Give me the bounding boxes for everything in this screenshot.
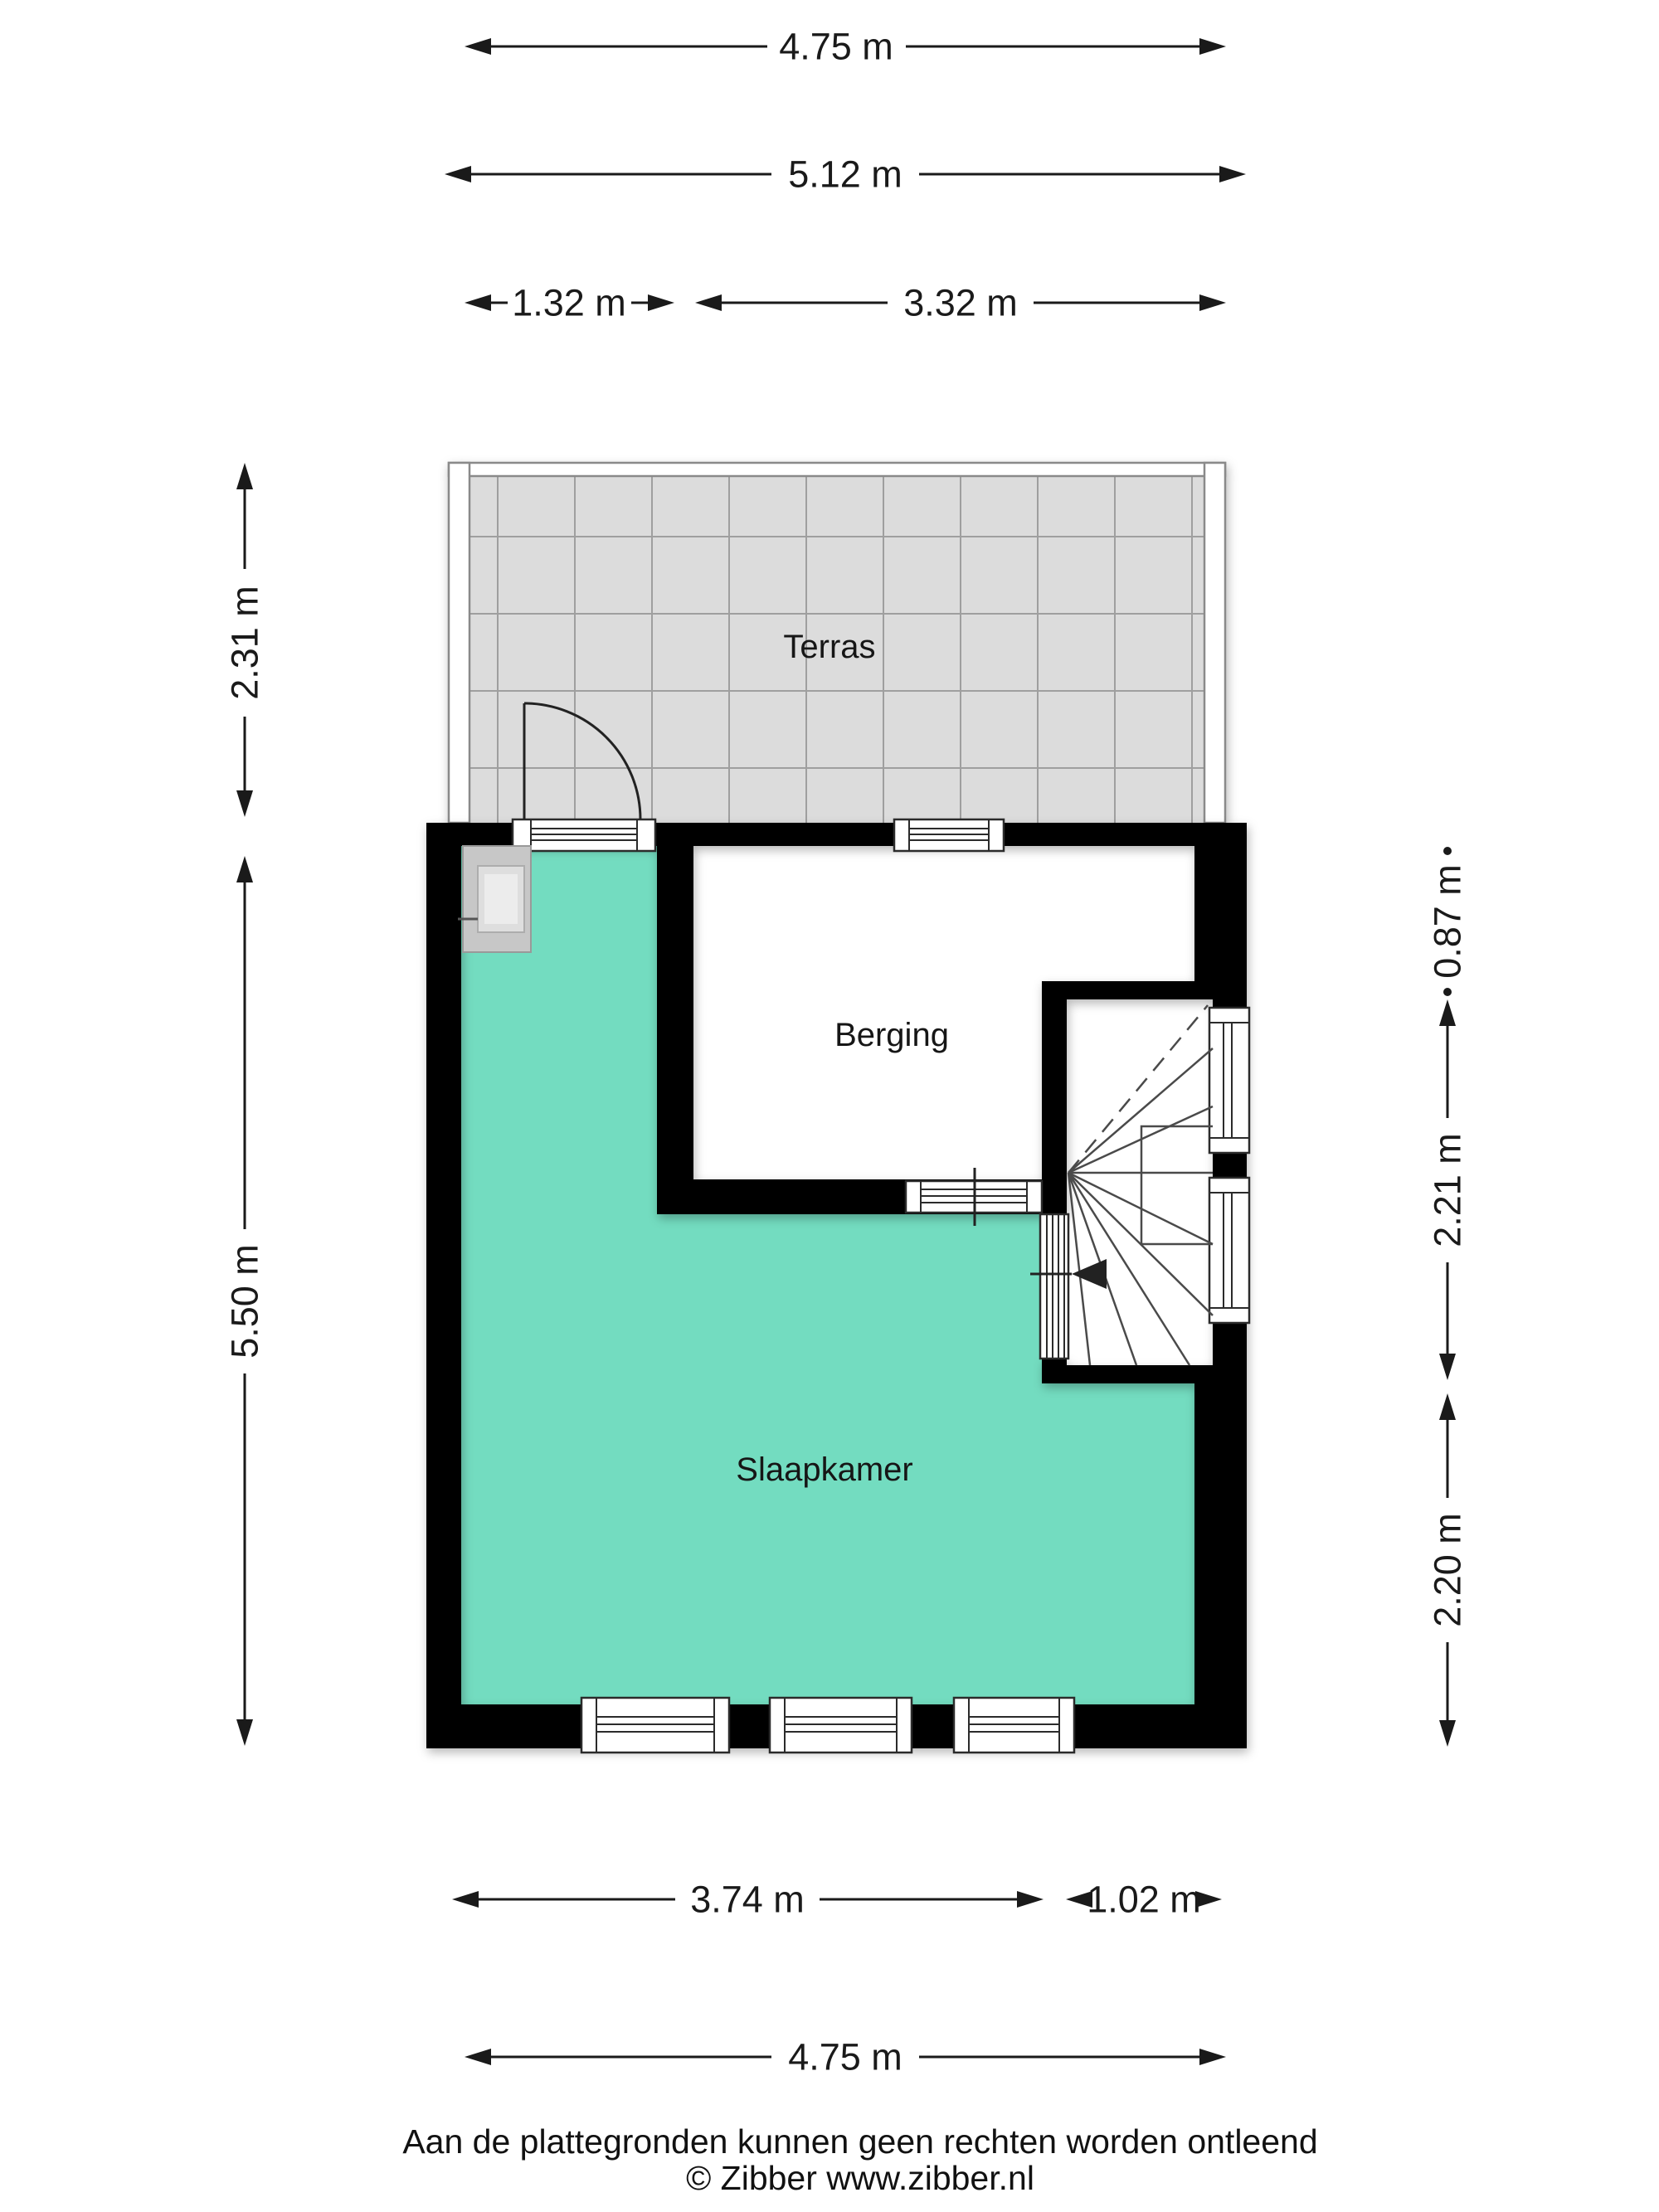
dim-label: 5.12 m bbox=[788, 153, 902, 196]
terrace-label: Terras bbox=[783, 629, 875, 665]
dim-label: 0.87 m bbox=[1427, 864, 1469, 979]
dim-right-middle: 2.21 m bbox=[1427, 999, 1469, 1380]
bottom-window-3 bbox=[954, 1698, 1074, 1753]
storage-label: Berging bbox=[834, 1017, 949, 1053]
stair-side-window bbox=[1040, 1214, 1068, 1359]
wall-stair-top bbox=[1042, 981, 1213, 999]
dim-bottom-right-segment: 1.02 m bbox=[1066, 1879, 1222, 1921]
footer-copyright: © Zibber www.zibber.nl bbox=[686, 2159, 1034, 2197]
dim-label: 1.32 m bbox=[512, 282, 626, 324]
dim-bottom-left-segment: 3.74 m bbox=[452, 1879, 1044, 1921]
dim-label: 2.20 m bbox=[1427, 1513, 1469, 1627]
dim-left-terrace-depth: 2.31 m bbox=[224, 463, 266, 817]
footer-disclaimer: Aan de plattegronden kunnen geen rechten… bbox=[402, 2122, 1317, 2161]
dim-top-left-segment: 1.32 m bbox=[465, 282, 674, 324]
right-window-lower bbox=[1209, 1178, 1249, 1323]
wall-left bbox=[426, 823, 461, 1748]
dim-label: 2.31 m bbox=[224, 586, 266, 700]
storage-window bbox=[894, 819, 1004, 851]
bedroom-label: Slaapkamer bbox=[736, 1451, 912, 1488]
dim-right-upper: 0.87 m bbox=[1427, 847, 1469, 996]
footer: Aan de plattegronden kunnen geen rechten… bbox=[402, 2122, 1317, 2197]
terrace-railing-right bbox=[1204, 463, 1225, 823]
wall-stair-bottom bbox=[1042, 1365, 1213, 1383]
dim-label: 3.74 m bbox=[690, 1879, 805, 1921]
bottom-window-1 bbox=[581, 1698, 729, 1753]
dim-top-width-inner: 4.75 m bbox=[465, 26, 1226, 68]
dim-top-right-segment: 3.32 m bbox=[695, 282, 1226, 324]
dim-top-width-outer: 5.12 m bbox=[445, 153, 1246, 196]
bedroom-fixture bbox=[458, 846, 531, 952]
dim-label: 4.75 m bbox=[779, 26, 893, 68]
dim-label: 5.50 m bbox=[224, 1244, 266, 1359]
dim-label: 4.75 m bbox=[788, 2036, 902, 2078]
dim-left-building-depth: 5.50 m bbox=[224, 856, 266, 1746]
terrace-railing-left bbox=[449, 463, 469, 823]
wall-right-upper bbox=[1194, 823, 1247, 999]
wall-right-lower bbox=[1194, 1383, 1247, 1748]
bottom-window-2 bbox=[770, 1698, 912, 1753]
dim-label: 2.21 m bbox=[1427, 1133, 1469, 1247]
dim-right-lower: 2.20 m bbox=[1427, 1393, 1469, 1747]
wall-bedroom-storage bbox=[657, 823, 693, 1214]
dim-label: 1.02 m bbox=[1087, 1879, 1201, 1921]
terrace-railing-top bbox=[449, 463, 1225, 476]
floor-plan: Terras Berging Slaapkamer 4.75 m 5.12 m … bbox=[0, 0, 1659, 2212]
dim-bottom-width: 4.75 m bbox=[465, 2036, 1226, 2078]
right-window-upper bbox=[1209, 1008, 1249, 1153]
wall-stair-left bbox=[1042, 981, 1067, 1214]
dim-label: 3.32 m bbox=[903, 282, 1018, 324]
